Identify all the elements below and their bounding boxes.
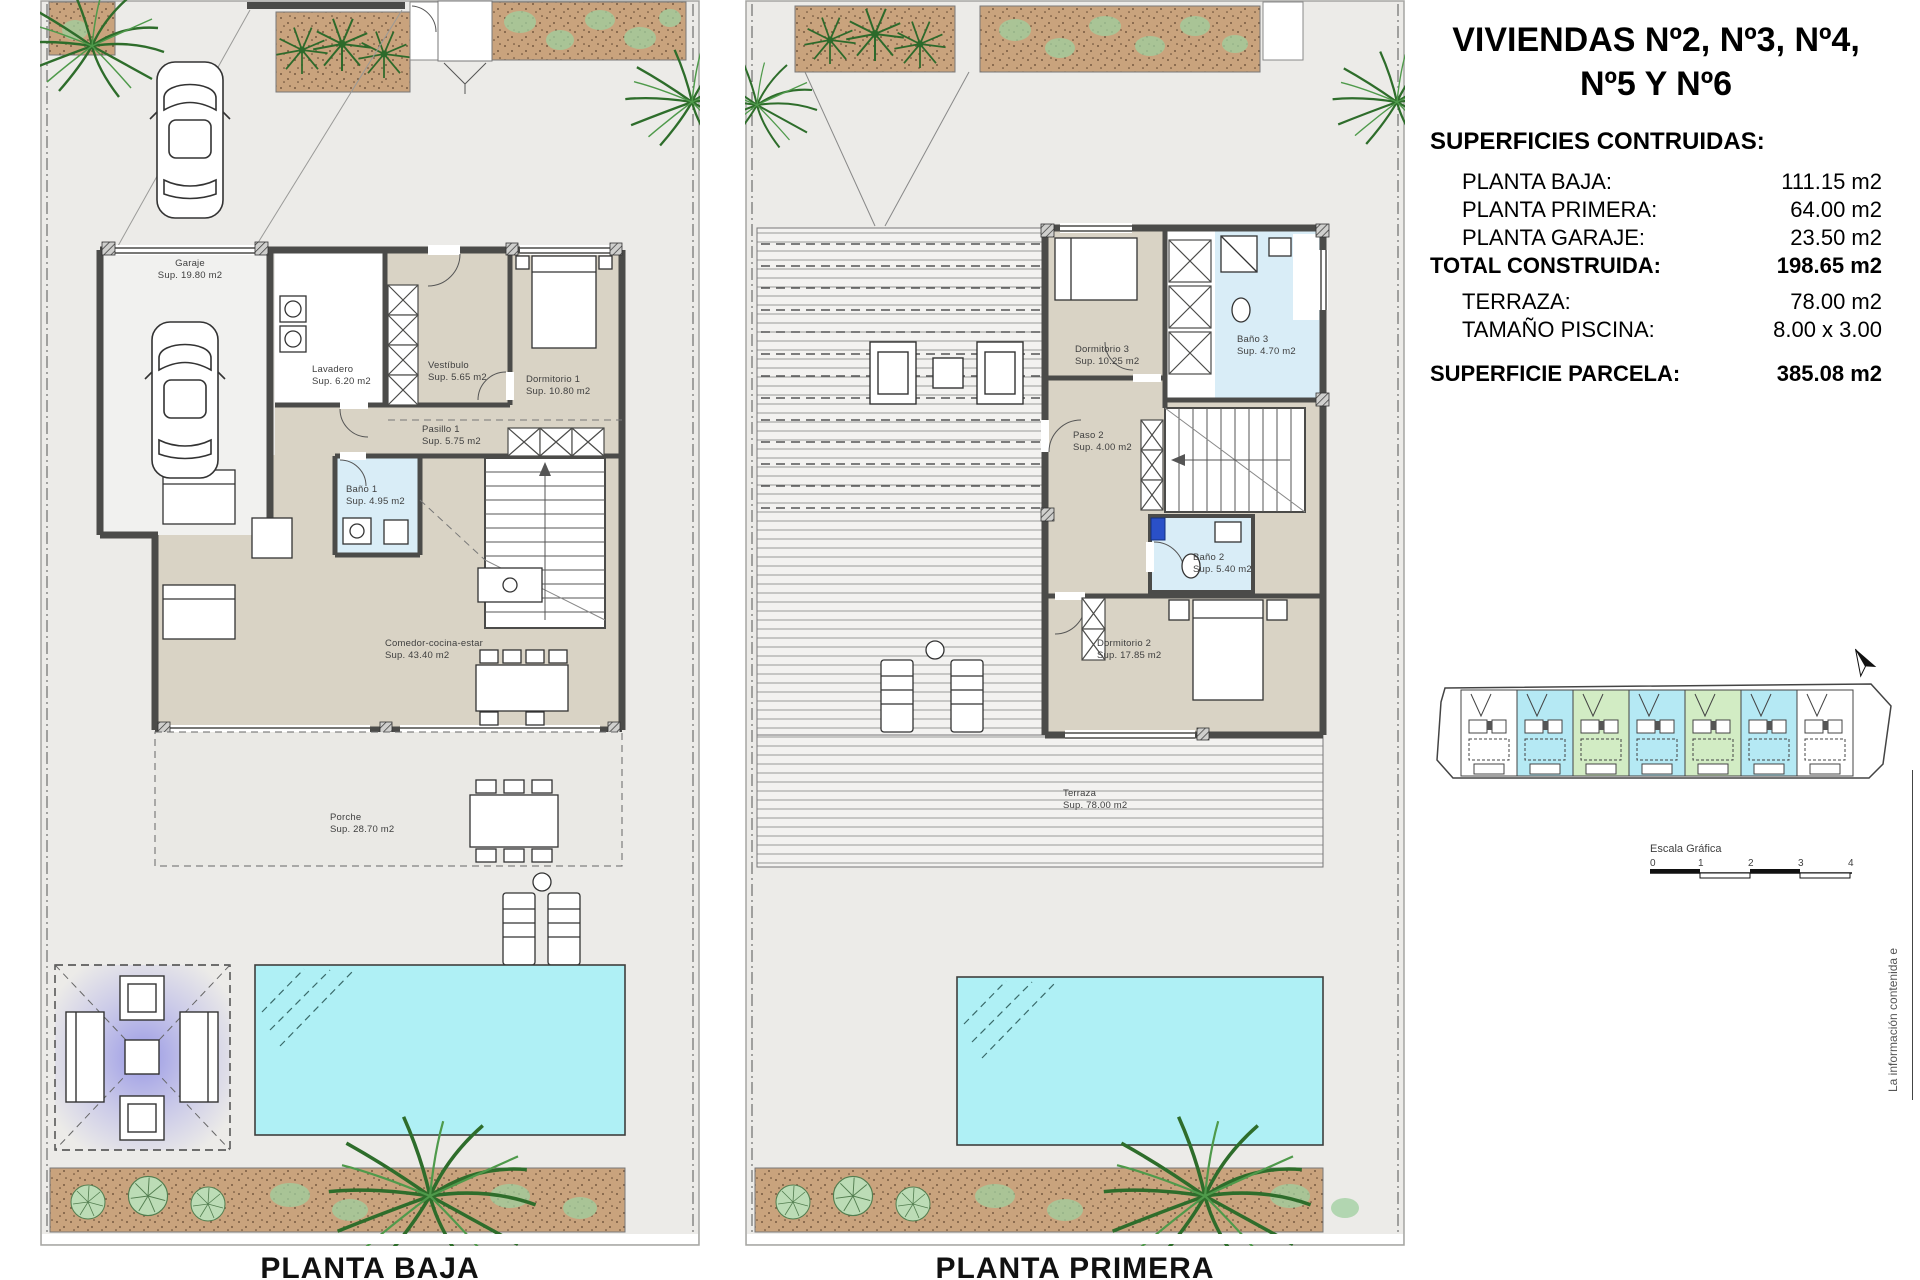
label-bano1: Baño 1 [346, 484, 377, 495]
svg-text:Sup. 10.25 m2: Sup. 10.25 m2 [1075, 356, 1139, 367]
title-line-2: Nº5 Y Nº6 [1430, 62, 1882, 106]
svg-text:3: 3 [1798, 858, 1804, 869]
label-garaje: Garaje [175, 258, 205, 269]
area-row-piscina: TAMAÑO PISCINA: 8.00 x 3.00 [1430, 316, 1882, 344]
svg-text:2: 2 [1748, 858, 1754, 869]
info-panel: VIVIENDAS Nº2, Nº3, Nº4, Nº5 Y Nº6 SUPER… [1430, 18, 1882, 388]
svg-text:Sup. 5.65 m2: Sup. 5.65 m2 [428, 372, 487, 383]
areas-heading: SUPERFICIES CONTRUIDAS: [1430, 128, 1882, 156]
caption-planta-primera: PLANTA PRIMERA [745, 1252, 1405, 1280]
sheet-margin [747, 1234, 1403, 1244]
gate-path [1263, 2, 1303, 60]
shower-fixture [1151, 518, 1165, 540]
label-porche: Porche [330, 812, 361, 823]
title-line-1: VIVIENDAS Nº2, Nº3, Nº4, [1430, 18, 1882, 62]
gate-path [410, 2, 438, 60]
area-row-planta-garaje: PLANTA GARAJE: 23.50 m2 [1430, 224, 1882, 252]
svg-text:Sup. 19.80 m2: Sup. 19.80 m2 [158, 270, 222, 281]
porch [155, 732, 622, 866]
svg-text:Sup. 4.00 m2: Sup. 4.00 m2 [1073, 442, 1132, 453]
site-key-plan [1425, 640, 1905, 810]
svg-text:1: 1 [1698, 858, 1704, 869]
svg-text:Sup. 78.00 m2: Sup. 78.00 m2 [1063, 800, 1127, 811]
svg-text:Sup. 6.20 m2: Sup. 6.20 m2 [312, 376, 371, 387]
svg-text:Sup. 5.75 m2: Sup. 5.75 m2 [422, 436, 481, 447]
sun-lounger [951, 660, 983, 732]
scale-seg-open [1700, 873, 1750, 878]
label-bano3: Baño 3 [1237, 334, 1268, 345]
area-row-terraza: TERRAZA: 78.00 m2 [1430, 288, 1882, 316]
scale-label: Escala Gráfica [1650, 843, 1722, 855]
label-dormitorio1: Dormitorio 1 [526, 374, 580, 385]
label-vestibulo: Vestíbulo [428, 360, 469, 371]
sheet-title: VIVIENDAS Nº2, Nº3, Nº4, Nº5 Y Nº6 [1430, 18, 1882, 106]
entry-pergola-beam [247, 2, 405, 9]
legal-side-note: La información contenida e [1886, 832, 1900, 1092]
svg-text:Sup. 5.40 m2: Sup. 5.40 m2 [1193, 564, 1252, 575]
label-comedor: Comedor-cocina-estar [385, 638, 483, 649]
svg-text:Sup. 4.70 m2: Sup. 4.70 m2 [1237, 346, 1296, 357]
area-row-planta-baja: PLANTA BAJA: 111.15 m2 [1430, 168, 1882, 196]
site-units [1461, 690, 1853, 776]
label-lavadero: Lavadero [312, 364, 353, 375]
drawing-planta-baja: Garaje Sup. 19.80 m2 Lavadero Sup. 6.20 … [40, 0, 700, 1246]
caption-planta-baja: PLANTA BAJA [40, 1252, 700, 1280]
scale-seg-filled [1650, 869, 1700, 873]
car-garage [145, 322, 225, 478]
area-row-total: TOTAL CONSTRUIDA: 198.65 m2 [1430, 252, 1882, 280]
side-table [926, 641, 944, 659]
stairs [1165, 408, 1305, 512]
svg-text:Sup. 4.95 m2: Sup. 4.95 m2 [346, 496, 405, 507]
entry-canopy [438, 1, 492, 61]
area-row-planta-primera: PLANTA PRIMERA: 64.00 m2 [1430, 196, 1882, 224]
svg-text:Sup. 28.70 m2: Sup. 28.70 m2 [330, 824, 394, 835]
sheet-border-line [1912, 770, 1913, 1100]
sun-lounger [881, 660, 913, 732]
car-driveway [150, 62, 230, 218]
area-row-parcela: SUPERFICIE PARCELA: 385.08 m2 [1430, 360, 1882, 388]
sheet-margin [42, 1234, 698, 1244]
floor-plan-sheet: Garaje Sup. 19.80 m2 Lavadero Sup. 6.20 … [0, 0, 1920, 1280]
label-dormitorio3: Dormitorio 3 [1075, 344, 1129, 355]
swimming-pool [957, 977, 1323, 1145]
drawing-planta-primera: Dormitorio 3 Sup. 10.25 m2 Baño 3 Sup. 4… [745, 0, 1405, 1246]
svg-text:Sup. 43.40 m2: Sup. 43.40 m2 [385, 650, 449, 661]
house-first-floor [1041, 223, 1329, 740]
scale-seg-filled [1750, 869, 1800, 873]
label-dormitorio2: Dormitorio 2 [1097, 638, 1151, 649]
label-terraza: Terraza [1063, 788, 1097, 799]
graphic-scale: Escala Gráfica 0 1 2 3 4 [1648, 840, 1878, 888]
svg-text:Sup. 10.80 m2: Sup. 10.80 m2 [526, 386, 590, 397]
svg-text:0: 0 [1650, 858, 1656, 869]
swimming-pool [255, 965, 625, 1135]
north-arrow-icon [1848, 645, 1877, 677]
svg-text:Sup. 17.85 m2: Sup. 17.85 m2 [1097, 650, 1161, 661]
scale-seg-open [1800, 873, 1850, 878]
pergola-lounge [55, 965, 230, 1150]
svg-text:4: 4 [1848, 858, 1854, 869]
label-bano2: Baño 2 [1193, 552, 1224, 563]
label-paso2: Paso 2 [1073, 430, 1104, 441]
label-pasillo1: Pasillo 1 [422, 424, 460, 435]
